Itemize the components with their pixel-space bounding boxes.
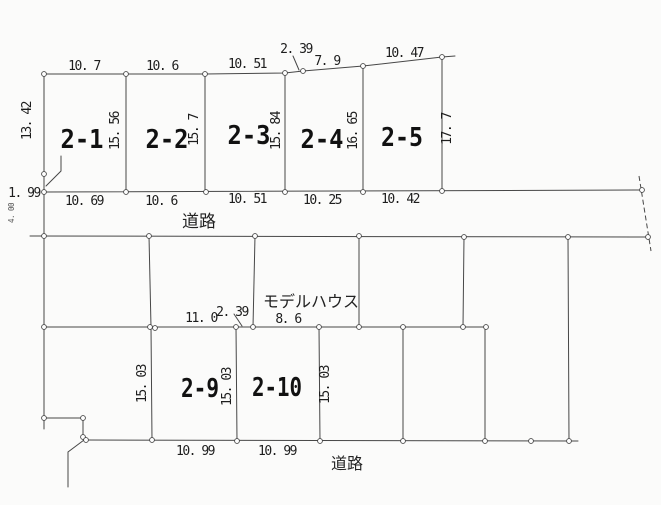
dim-bottom-width-5: 10. 42 <box>381 192 420 207</box>
dim-bottom-width-2: 10. 6 <box>145 194 177 209</box>
upper-road-label: 道路 <box>182 212 216 232</box>
plot-label-2-10: 2-10 <box>252 373 302 403</box>
dim-bottom-width-1: 10. 69 <box>65 194 104 209</box>
dim-lower-width-1: 10. 99 <box>176 444 215 459</box>
dim-lower-depth-1: 15. 03 <box>135 364 150 403</box>
upper-road-width-dim: 4. 00 <box>7 202 16 223</box>
dim-depth-3: 15. 84 <box>269 110 284 150</box>
plot-label-2-4: 2-4 <box>301 125 344 155</box>
dim-depth-1: 15. 56 <box>108 111 123 150</box>
plot-label-2-2: 2-2 <box>146 125 189 155</box>
dim-top-width-6: 10. 47 <box>385 46 424 61</box>
plot-label-2-1: 2-1 <box>61 125 104 155</box>
plot-label-2-3: 2-3 <box>228 121 271 151</box>
dim-left-lower: 1. 99 <box>8 186 40 201</box>
plot-label-2-5: 2-5 <box>381 123 423 153</box>
cadastral-map-page: 10. 7 10. 6 10. 51 2. 39 7. 9 10. 47 10.… <box>0 0 661 505</box>
dim-lower-width-2: 10. 99 <box>258 444 297 459</box>
lower-block-labels: 15. 03 15. 03 15. 03 2-9 2-10 10. 99 10.… <box>135 364 333 459</box>
dim-frontage-8-6: 8. 6 <box>275 312 301 327</box>
dim-top-width-1: 10. 7 <box>68 59 100 74</box>
dim-depth-2: 15. 7 <box>187 114 202 146</box>
middle-block-labels: 11. 0 2. 39 8. 6 モデルハウス <box>185 292 359 327</box>
dim-frontage-11-0: 11. 0 <box>185 311 217 326</box>
dim-depth-5: 17. 7 <box>440 113 455 145</box>
dim-bottom-width-4: 10. 25 <box>303 193 342 208</box>
dim-top-width-3: 10. 51 <box>228 57 267 72</box>
dim-bottom-width-3: 10. 51 <box>228 192 267 207</box>
dim-lower-depth-3: 15. 03 <box>318 365 333 404</box>
lower-road-label: 道路 <box>331 454 363 473</box>
dim-lower-depth-2: 15. 03 <box>220 367 235 406</box>
model-house-label: モデルハウス <box>263 292 359 311</box>
dim-frontage-2-39: 2. 39 <box>216 305 248 320</box>
dim-left-height: 13. 42 <box>20 101 35 140</box>
dim-depth-4: 16. 65 <box>346 111 361 150</box>
plot-label-2-9: 2-9 <box>181 374 219 404</box>
dim-top-width-5: 7. 9 <box>314 54 340 69</box>
plot-map-drawing: 10. 7 10. 6 10. 51 2. 39 7. 9 10. 47 10.… <box>0 0 661 505</box>
dim-top-width-4: 2. 39 <box>280 42 312 57</box>
dim-top-width-2: 10. 6 <box>146 59 178 74</box>
dashed-boundary-line <box>639 176 651 251</box>
